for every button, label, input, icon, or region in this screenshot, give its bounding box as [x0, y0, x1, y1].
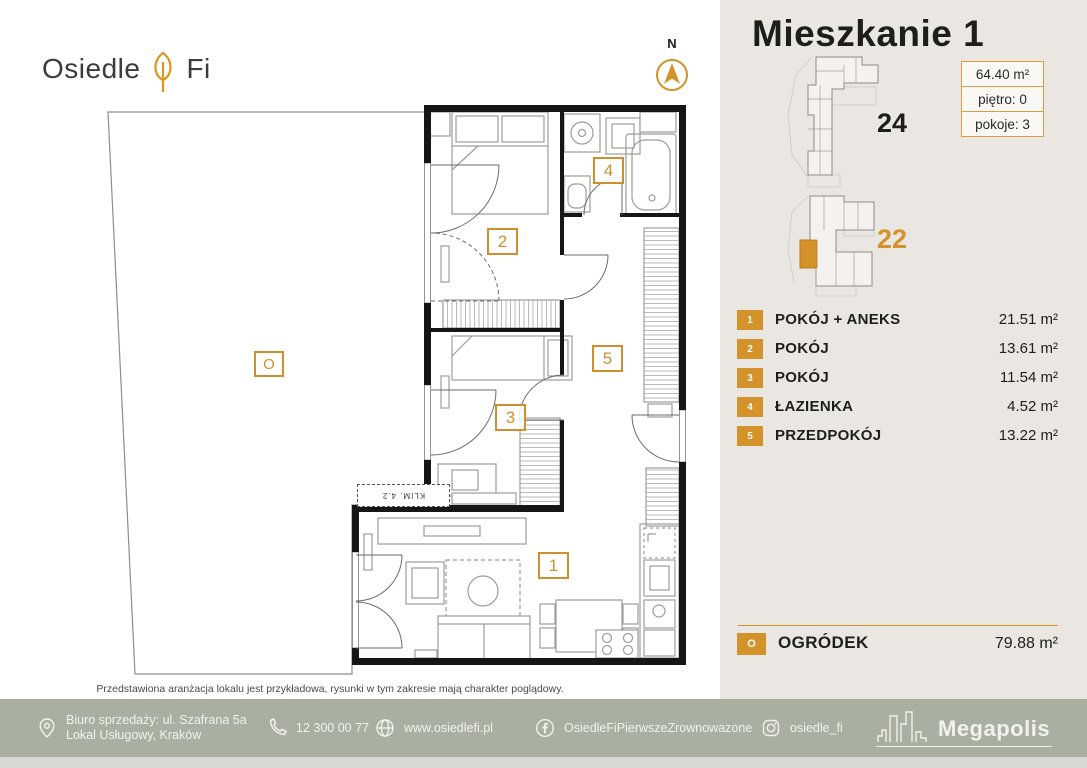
sales-office-address: Biuro sprzedaży: ul. Szafrana 5a Lokal U…: [36, 699, 247, 757]
garden-label-o: O: [254, 351, 284, 377]
garden-badge: O: [737, 633, 766, 655]
address-line-1: Biuro sprzedaży: ul. Szafrana 5a: [66, 713, 247, 728]
garden-separator: [738, 625, 1058, 626]
page-title: Mieszkanie 1: [752, 13, 984, 55]
room-list-row: 4 ŁAZIENKA 4.52 m²: [737, 397, 1058, 419]
garden-row: O OGRÓDEK 79.88 m²: [737, 633, 1058, 657]
room-number-badge: 4: [737, 397, 763, 417]
room-list-row: 5 PRZEDPOKÓJ 13.22 m²: [737, 426, 1058, 448]
disclaimer-text: Przedstawiona aranżacja lokalu jest przy…: [85, 683, 575, 695]
room-number-badge: 2: [737, 339, 763, 359]
room-name: ŁAZIENKA: [775, 398, 853, 415]
map-pin-icon: [36, 717, 58, 739]
room-area: 13.22 m²: [999, 427, 1058, 444]
partner-logo: Megapolis: [876, 701, 1052, 747]
unit-rooms-box: pokoje: 3: [961, 111, 1044, 137]
room-list-row: 3 POKÓJ 11.54 m²: [737, 368, 1058, 390]
building-22-siteplan: [780, 190, 880, 300]
room-area: 13.61 m²: [999, 340, 1058, 357]
facebook-link[interactable]: OsiedleFiPierwszeZrownowazone: [534, 699, 752, 757]
room-area: 11.54 m²: [1000, 369, 1058, 386]
phone-icon: [266, 717, 288, 739]
room-area: 4.52 m²: [1007, 398, 1058, 415]
garden-name: OGRÓDEK: [778, 633, 869, 653]
room-label-5: 5: [592, 345, 623, 372]
highlighted-unit: [800, 240, 817, 268]
website-link[interactable]: www.osiedlefi.pl: [374, 699, 493, 757]
room-number-badge: 5: [737, 426, 763, 446]
unit-area-box: 64.40 m²: [961, 61, 1044, 87]
room-list-row: 1 POKÓJ + ANEKS 21.51 m²: [737, 310, 1058, 332]
klim-unit-label: KLIM. 4.2: [357, 484, 450, 507]
partner-name: Megapolis: [938, 716, 1050, 742]
unit-floor-box: piętro: 0: [961, 86, 1044, 112]
globe-icon: [374, 717, 396, 739]
room-label-1: 1: [538, 552, 569, 579]
bottom-strip: [0, 757, 1087, 768]
room-name: POKÓJ: [775, 369, 829, 386]
address-line-2: Lokal Usługowy, Kraków: [66, 728, 247, 743]
room-number-badge: 3: [737, 368, 763, 388]
phone-contact[interactable]: 12 300 00 77: [266, 699, 369, 757]
instagram-link[interactable]: osiedle_fi: [760, 699, 843, 757]
building-22-number: 22: [877, 224, 907, 255]
furniture-layer: [364, 112, 679, 660]
phone-number: 12 300 00 77: [296, 721, 369, 735]
info-panel: Mieszkanie 1 24: [720, 0, 1087, 699]
building-24-siteplan: [782, 55, 882, 190]
garden-outline: [108, 112, 428, 674]
room-label-3: 3: [495, 404, 526, 431]
facebook-handle: OsiedleFiPierwszeZrownowazone: [564, 721, 752, 735]
room-name: POKÓJ: [775, 340, 829, 357]
room-number-badge: 1: [737, 310, 763, 330]
room-name: PRZEDPOKÓJ: [775, 427, 881, 444]
garden-area: 79.88 m²: [995, 635, 1058, 653]
unit-info-boxes: 64.40 m² piętro: 0 pokoje: 3: [961, 62, 1044, 137]
instagram-icon: [760, 717, 782, 739]
website-url: www.osiedlefi.pl: [404, 721, 493, 735]
room-label-2: 2: [487, 228, 518, 255]
room-name: POKÓJ + ANEKS: [775, 311, 900, 328]
skyline-icon: [876, 710, 928, 744]
room-area: 21.51 m²: [999, 311, 1058, 328]
instagram-handle: osiedle_fi: [790, 721, 843, 735]
facebook-icon: [534, 717, 556, 739]
room-list-row: 2 POKÓJ 13.61 m²: [737, 339, 1058, 361]
building-24-number: 24: [877, 108, 907, 139]
room-label-4: 4: [593, 157, 624, 184]
flyer-page: Osiedle Fi N: [0, 0, 1087, 768]
footer-bar: Biuro sprzedaży: ul. Szafrana 5a Lokal U…: [0, 699, 1087, 757]
